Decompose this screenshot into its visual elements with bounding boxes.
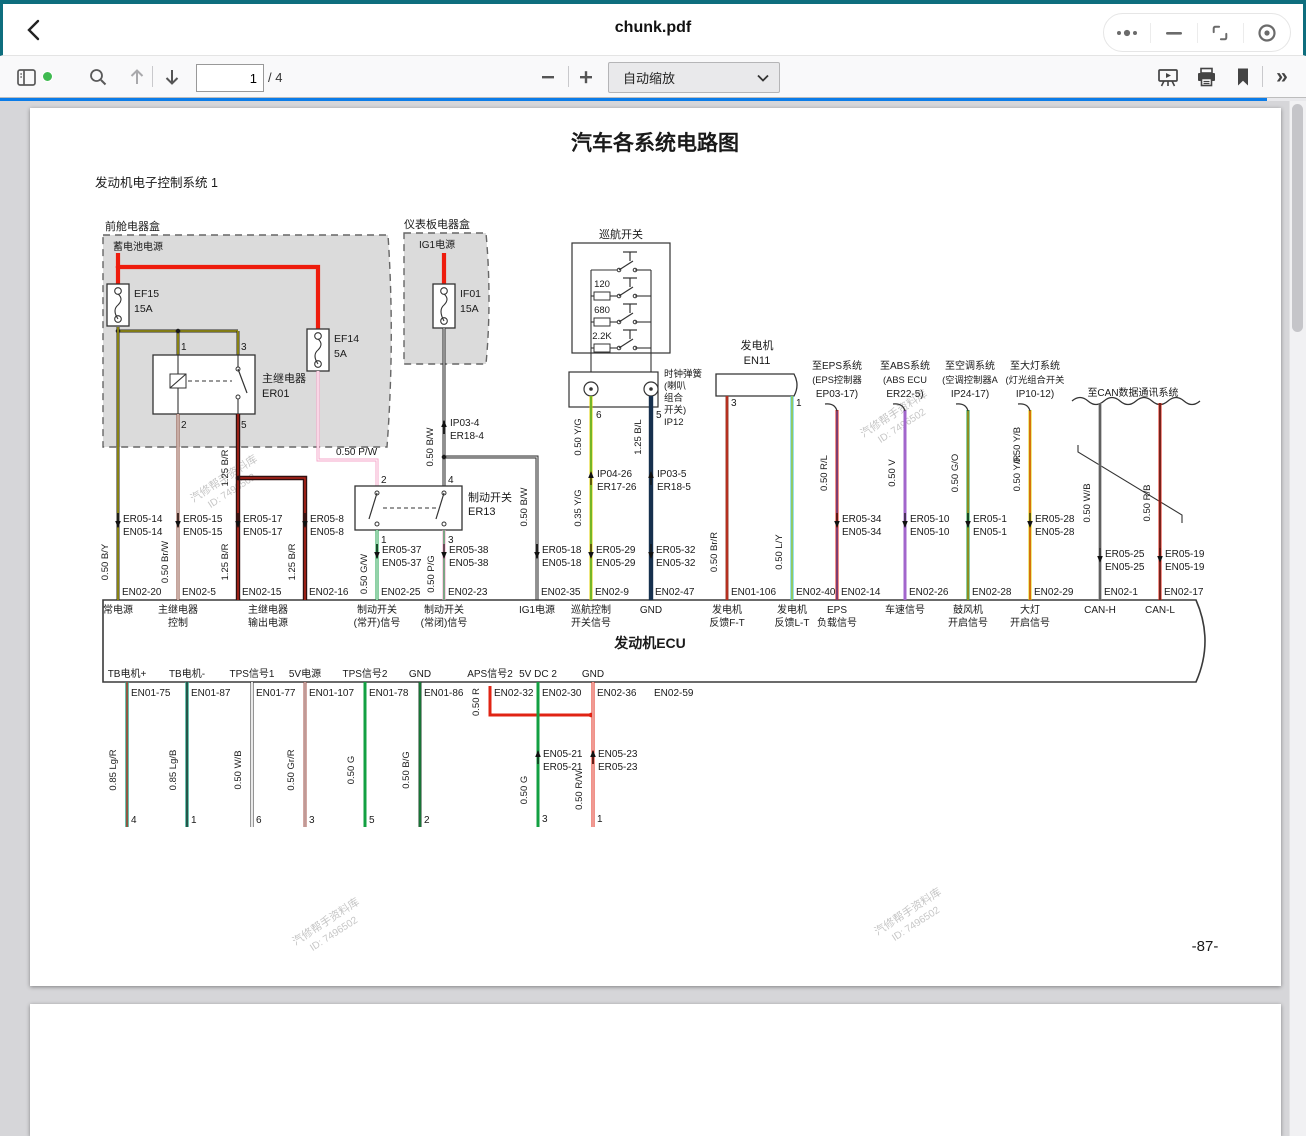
svg-text:输出电源: 输出电源	[248, 616, 288, 629]
svg-text:IF01: IF01	[460, 288, 481, 300]
svg-text:5V DC 2: 5V DC 2	[519, 669, 557, 680]
svg-text:0.50 B/G: 0.50 B/G	[401, 751, 412, 789]
svg-text:EN02-14: EN02-14	[841, 587, 881, 598]
svg-text:3: 3	[309, 815, 315, 826]
svg-text:0.50 Br/R: 0.50 Br/R	[709, 532, 720, 572]
brake-switch: 2413制动开关ER13	[355, 475, 512, 546]
svg-text:0.50 R: 0.50 R	[471, 688, 482, 716]
svg-text:TB电机-: TB电机-	[169, 667, 205, 680]
pdf-toolbar: / 4 自动缩放 »	[0, 56, 1306, 98]
svg-text:巡航开关: 巡航开关	[599, 227, 643, 241]
svg-text:至ABS系统: 至ABS系统	[880, 359, 930, 372]
svg-text:EN05-14: EN05-14	[123, 527, 163, 538]
window-titlebar: chunk.pdf	[0, 0, 1306, 56]
svg-text:EN02-5: EN02-5	[182, 587, 216, 598]
svg-text:0.50 G: 0.50 G	[519, 776, 530, 805]
more-tools-button[interactable]: »	[1268, 63, 1296, 91]
svg-text:15A: 15A	[134, 303, 153, 315]
svg-text:(常闭)信号: (常闭)信号	[421, 616, 468, 629]
svg-text:主继电器: 主继电器	[262, 372, 306, 385]
wire-EN01-77: EN01-77TPS信号10.50 W/B6	[229, 668, 295, 827]
svg-text:1.25 B/R: 1.25 B/R	[287, 543, 298, 580]
more-dots-icon	[1114, 28, 1140, 38]
svg-text:0.35 Y/G: 0.35 Y/G	[573, 489, 584, 526]
generator: 发电机EN1131	[716, 338, 802, 409]
svg-text:1.25 B/L: 1.25 B/L	[633, 419, 644, 454]
svg-text:GND: GND	[640, 605, 662, 616]
record-button[interactable]	[1244, 14, 1290, 51]
svg-text:ER05-34: ER05-34	[842, 514, 882, 525]
svg-text:EN02-40: EN02-40	[796, 587, 836, 598]
svg-text:ER05-1: ER05-1	[973, 514, 1007, 525]
svg-text:0.50 G/W: 0.50 G/W	[359, 554, 370, 594]
svg-text:开关信号: 开关信号	[571, 616, 611, 629]
svg-text:EN05-25: EN05-25	[1105, 562, 1145, 573]
svg-text:蓄电池电源: 蓄电池电源	[113, 240, 163, 253]
zoom-select[interactable]: 自动缩放	[608, 62, 780, 93]
svg-text:反馈L-T: 反馈L-T	[775, 616, 810, 629]
svg-text:开启信号: 开启信号	[1010, 616, 1050, 629]
svg-text:EF14: EF14	[334, 333, 359, 345]
notification-dot	[42, 71, 53, 82]
svg-text:0.50 W/B: 0.50 W/B	[233, 750, 244, 789]
wire-EN02-28: EN02-28鼓风机开启信号0.50 G/OER05-1EN05-1	[948, 404, 1012, 629]
svg-text:EN05-23: EN05-23	[598, 749, 638, 760]
svg-text:0.50 Br/W: 0.50 Br/W	[160, 541, 171, 583]
plus-icon	[578, 69, 594, 85]
svg-text:汽车各系统电路图: 汽车各系统电路图	[571, 131, 739, 155]
svg-text:TB电机+: TB电机+	[108, 667, 147, 680]
svg-text:0.50 R/W: 0.50 R/W	[574, 770, 585, 810]
svg-text:ER05-23: ER05-23	[598, 762, 638, 773]
watermark: 汽修帮手资料库ID: 7496502	[872, 884, 952, 949]
svg-text:EN01-107: EN01-107	[309, 688, 354, 699]
svg-text:ER05-29: ER05-29	[596, 545, 636, 556]
svg-text:EN02-30: EN02-30	[542, 688, 582, 699]
svg-text:CAN-H: CAN-H	[1084, 605, 1116, 616]
svg-text:3: 3	[241, 342, 247, 353]
svg-text:EPS: EPS	[827, 605, 847, 616]
svg-text:GND: GND	[409, 669, 431, 680]
branch-label-0: 至EPS系统(EPS控制器EP03-17)	[812, 359, 863, 400]
svg-text:(EPS控制器: (EPS控制器	[812, 374, 862, 385]
more-menu-button[interactable]	[1104, 14, 1150, 51]
svg-text:前舱电器盒: 前舱电器盒	[105, 219, 160, 233]
svg-text:EN01-78: EN01-78	[369, 688, 409, 699]
record-icon	[1257, 23, 1277, 43]
svg-text:EN02-9: EN02-9	[595, 587, 629, 598]
svg-text:EN02-36: EN02-36	[597, 688, 637, 699]
svg-text:ER05-28: ER05-28	[1035, 514, 1075, 525]
svg-text:开关): 开关)	[664, 404, 686, 416]
svg-text:2.2K: 2.2K	[592, 331, 612, 342]
svg-text:EN05-29: EN05-29	[596, 558, 636, 569]
svg-text:IP12: IP12	[664, 417, 684, 428]
previous-page-button[interactable]	[123, 63, 151, 91]
svg-text:制动开关: 制动开关	[424, 603, 464, 616]
wire-EN02-29: EN02-29大灯开启信号0.50 Y/R0.50 Y/BER05-28EN05…	[1010, 404, 1075, 629]
svg-text:至空调系统: 至空调系统	[945, 359, 995, 372]
svg-text:EN05-19: EN05-19	[1165, 562, 1205, 573]
svg-text:ER22-5): ER22-5)	[886, 389, 923, 400]
svg-text:ER05-38: ER05-38	[449, 545, 489, 556]
svg-text:EN01-87: EN01-87	[191, 688, 231, 699]
svg-text:EN05-18: EN05-18	[542, 558, 582, 569]
svg-text:2: 2	[381, 475, 387, 486]
wire-EN02-9: EN02-9巡航控制开关信号0.35 Y/G0.50 Y/GER05-29EN0…	[571, 396, 637, 629]
svg-text:1.25 B/R: 1.25 B/R	[220, 543, 231, 580]
svg-text:主继电器: 主继电器	[158, 603, 198, 616]
svg-text:5: 5	[656, 410, 662, 421]
svg-text:4: 4	[131, 815, 137, 826]
svg-text:ER05-14: ER05-14	[123, 514, 163, 525]
svg-text:EN02-32: EN02-32	[494, 688, 534, 699]
svg-text:2: 2	[181, 420, 187, 431]
svg-text:EN01-75: EN01-75	[131, 688, 171, 699]
svg-text:ER05-25: ER05-25	[1105, 549, 1145, 560]
svg-text:680: 680	[594, 305, 610, 316]
svg-text:至EPS系统: 至EPS系统	[812, 359, 862, 372]
wire-EN01-87: EN01-87TB电机-0.85 Lg/B1	[168, 667, 231, 827]
svg-text:IP03-5: IP03-5	[657, 469, 687, 480]
svg-text:0.50 P/W: 0.50 P/W	[336, 447, 378, 458]
presentation-mode-button[interactable]	[1154, 63, 1182, 91]
svg-text:鼓风机: 鼓风机	[953, 603, 983, 616]
svg-text:组合: 组合	[664, 392, 684, 404]
svg-text:仪表板电器盒: 仪表板电器盒	[404, 217, 470, 231]
svg-text:IG1电源: IG1电源	[419, 238, 455, 251]
svg-text:ER05-17: ER05-17	[243, 514, 283, 525]
minus-icon	[540, 69, 556, 85]
svg-text:TPS信号2: TPS信号2	[342, 668, 387, 680]
svg-text:EN05-17: EN05-17	[243, 527, 283, 538]
minimize-icon	[1165, 30, 1183, 36]
svg-text:至CAN数据通讯系统: 至CAN数据通讯系统	[1087, 386, 1178, 399]
svg-text:时钟弹簧: 时钟弹簧	[664, 368, 703, 380]
svg-text:0.50 R/B: 0.50 R/B	[1142, 485, 1153, 522]
wire-EN01-86: EN01-86GND0.50 B/G2	[401, 669, 464, 827]
wire-EN02-59: EN02-59	[654, 688, 694, 699]
bookmark-icon	[1235, 67, 1251, 87]
svg-text:EN05-37: EN05-37	[382, 558, 422, 569]
svg-text:6: 6	[596, 410, 602, 421]
svg-text:0.85 Lg/R: 0.85 Lg/R	[108, 749, 119, 790]
svg-text:0.50 W/B: 0.50 W/B	[1082, 483, 1093, 522]
pdf-page-2	[30, 1004, 1281, 1136]
scrollbar-thumb[interactable]	[1292, 104, 1303, 332]
zoom-out-button[interactable]	[534, 63, 562, 91]
cruise-switch: 巡航开关1206802.2K	[572, 227, 670, 372]
svg-text:5A: 5A	[334, 348, 347, 360]
svg-text:15A: 15A	[460, 303, 479, 315]
wire-EN02-40: EN02-40发电机反馈L-T0.50 L/Y	[774, 396, 836, 629]
svg-text:主继电器: 主继电器	[248, 603, 288, 616]
svg-text:制动开关: 制动开关	[357, 603, 397, 616]
svg-text:120: 120	[594, 279, 610, 290]
branch-label-3: 至大灯系统(灯光组合开关IP10-12)	[1006, 359, 1065, 400]
svg-text:EN02-1: EN02-1	[1104, 587, 1138, 598]
svg-text:发电机: 发电机	[741, 338, 774, 352]
svg-text:0.50 L/Y: 0.50 L/Y	[774, 534, 785, 570]
svg-text:1: 1	[191, 815, 197, 826]
wire-EN01-75: EN01-75TB电机+0.85 Lg/R4	[108, 667, 171, 827]
svg-text:EN05-32: EN05-32	[656, 558, 696, 569]
window-controls	[1103, 13, 1291, 52]
arrow-down-icon	[163, 67, 181, 87]
svg-text:EN02-28: EN02-28	[972, 587, 1012, 598]
branch-label-1: 至ABS系统(ABS ECUER22-5)	[880, 359, 930, 400]
clock-spring: 65时钟弹簧(喇叭组合开关)IP12	[569, 368, 703, 428]
svg-text:ER05-37: ER05-37	[382, 545, 422, 556]
svg-text:IP03-4: IP03-4	[450, 418, 480, 429]
svg-text:0.50 V: 0.50 V	[887, 459, 898, 487]
svg-text:EF15: EF15	[134, 288, 159, 300]
svg-text:ER13: ER13	[468, 506, 496, 518]
svg-text:6: 6	[256, 815, 262, 826]
svg-text:EN05-8: EN05-8	[310, 527, 344, 538]
svg-text:0.50 B/W: 0.50 B/W	[519, 487, 530, 526]
svg-text:大灯: 大灯	[1020, 603, 1040, 616]
svg-text:EN02-26: EN02-26	[909, 587, 949, 598]
svg-text:(ABS ECU: (ABS ECU	[883, 375, 927, 385]
svg-text:负载信号: 负载信号	[817, 616, 857, 629]
svg-text:EN05-1: EN05-1	[973, 527, 1007, 538]
svg-text:EN01-77: EN01-77	[256, 688, 296, 699]
svg-text:IP24-17): IP24-17)	[951, 389, 989, 400]
svg-text:ER05-32: ER05-32	[656, 545, 696, 556]
svg-text:EN02-15: EN02-15	[242, 587, 282, 598]
svg-text:EN02-16: EN02-16	[309, 587, 349, 598]
chevron-down-icon	[757, 74, 769, 82]
bookmark-button[interactable]	[1229, 63, 1257, 91]
svg-text:TPS信号1: TPS信号1	[229, 668, 274, 680]
svg-text:EN02-17: EN02-17	[1164, 587, 1204, 598]
svg-text:3: 3	[542, 814, 548, 825]
print-icon	[1196, 67, 1217, 88]
scrollbar[interactable]	[1289, 101, 1306, 1136]
svg-text:-87-: -87-	[1192, 938, 1219, 955]
svg-text:ER05-10: ER05-10	[910, 514, 950, 525]
svg-text:1: 1	[796, 398, 802, 409]
page-number-input[interactable]	[196, 64, 264, 92]
sidebar-icon	[16, 67, 37, 88]
svg-text:EN05-38: EN05-38	[449, 558, 489, 569]
print-button[interactable]	[1192, 63, 1220, 91]
svg-text:1: 1	[181, 342, 187, 353]
wire-EN01-107: EN01-1075V电源0.50 Gr/R3	[286, 667, 354, 827]
svg-text:EN05-21: EN05-21	[543, 749, 583, 760]
svg-text:EP03-17): EP03-17)	[816, 389, 858, 400]
svg-text:(喇叭: (喇叭	[664, 380, 687, 392]
svg-text:0.50 G/O: 0.50 G/O	[950, 454, 961, 493]
svg-text:ER18-5: ER18-5	[657, 482, 691, 493]
arrow-up-icon	[128, 67, 146, 87]
svg-text:EN11: EN11	[744, 355, 771, 367]
fullscreen-button[interactable]	[1198, 14, 1244, 51]
svg-text:发动机电子控制系统 1: 发动机电子控制系统 1	[95, 175, 218, 190]
svg-text:4: 4	[448, 475, 454, 486]
svg-text:EN02-59: EN02-59	[654, 688, 694, 699]
watermark: 汽修帮手资料库ID: 7496502	[290, 894, 370, 959]
zoom-select-label: 自动缩放	[609, 68, 757, 87]
search-icon	[88, 67, 108, 87]
wire-EN02-36: EN02-36GND0.50 R/W1EN05-23ER05-23	[574, 669, 638, 827]
svg-text:1: 1	[597, 814, 603, 825]
svg-text:EN02-47: EN02-47	[655, 587, 695, 598]
svg-text:EN02-23: EN02-23	[448, 587, 488, 598]
svg-text:IP10-12): IP10-12)	[1016, 389, 1054, 400]
svg-text:发动机ECU: 发动机ECU	[613, 635, 686, 651]
svg-text:3: 3	[731, 398, 737, 409]
svg-text:IG1电源: IG1电源	[519, 603, 555, 616]
svg-text:EN05-15: EN05-15	[183, 527, 223, 538]
svg-text:EN05-28: EN05-28	[1035, 527, 1075, 538]
svg-text:CAN-L: CAN-L	[1145, 605, 1175, 616]
svg-text:0.50 Y/B: 0.50 Y/B	[1012, 427, 1023, 463]
svg-text:ER05-19: ER05-19	[1165, 549, 1205, 560]
svg-text:ER01: ER01	[262, 388, 290, 400]
branch-label-2: 至空调系统(空调控制器AIP24-17)	[942, 359, 999, 400]
svg-text:EN05-10: EN05-10	[910, 527, 950, 538]
svg-text:0.85 Lg/B: 0.85 Lg/B	[168, 750, 179, 791]
wire-EN02-1: EN02-1CAN-H0.50 W/BER05-25EN05-25	[1082, 403, 1145, 616]
svg-text:0.50 Y/G: 0.50 Y/G	[573, 418, 584, 455]
svg-text:IP04-26: IP04-26	[597, 469, 632, 480]
svg-text:ER05-8: ER05-8	[310, 514, 344, 525]
svg-text:(空调控制器A: (空调控制器A	[942, 374, 999, 385]
svg-text:(灯光组合开关: (灯光组合开关	[1006, 374, 1065, 385]
svg-text:EN02-29: EN02-29	[1034, 587, 1074, 598]
svg-text:EN01-86: EN01-86	[424, 688, 464, 699]
svg-text:GND: GND	[582, 669, 604, 680]
svg-text:5: 5	[369, 815, 375, 826]
svg-text:ER05-18: ER05-18	[542, 545, 582, 556]
svg-text:5V电源: 5V电源	[289, 667, 321, 680]
svg-text:0.50 G: 0.50 G	[346, 756, 357, 785]
svg-text:制动开关: 制动开关	[468, 490, 512, 504]
svg-text:常电源: 常电源	[103, 603, 133, 616]
page-total-label: / 4	[268, 70, 282, 85]
svg-text:发电机: 发电机	[712, 603, 742, 616]
next-page-button[interactable]	[158, 63, 186, 91]
svg-text:ER05-15: ER05-15	[183, 514, 223, 525]
svg-text:0.50 R/L: 0.50 R/L	[819, 455, 830, 491]
svg-text:0.50 Gr/R: 0.50 Gr/R	[286, 749, 297, 790]
wire-EN01-106: EN01-106发电机反馈F-T0.50 Br/R	[709, 396, 776, 629]
fullscreen-icon	[1211, 24, 1229, 42]
svg-text:2: 2	[424, 815, 430, 826]
svg-text:控制: 控制	[168, 616, 188, 629]
svg-text:开启信号: 开启信号	[948, 616, 988, 629]
svg-text:ER17-26: ER17-26	[597, 482, 637, 493]
svg-text:EN02-35: EN02-35	[541, 587, 581, 598]
svg-text:巡航控制: 巡航控制	[571, 603, 611, 616]
zoom-in-button[interactable]	[572, 63, 600, 91]
sidebar-toggle-button[interactable]	[12, 63, 40, 91]
svg-text:EN01-106: EN01-106	[731, 587, 776, 598]
svg-text:0.50 B/W: 0.50 B/W	[425, 427, 436, 466]
wire-EN02-47: EN02-47GND1.25 B/LER05-32EN05-32IP03-5ER…	[633, 396, 696, 616]
pdf-page-1: 汽修帮手资料库ID: 7496502汽修帮手资料库ID: 7496502汽修帮手…	[30, 108, 1281, 986]
svg-text:1.25 B/R: 1.25 B/R	[220, 449, 231, 486]
svg-text:5: 5	[241, 420, 247, 431]
svg-text:(常开)信号: (常开)信号	[354, 616, 401, 629]
svg-text:EN05-34: EN05-34	[842, 527, 882, 538]
svg-text:车速信号: 车速信号	[885, 603, 925, 616]
presentation-icon	[1157, 67, 1179, 88]
svg-text:ER18-4: ER18-4	[450, 431, 484, 442]
svg-text:发电机: 发电机	[777, 603, 807, 616]
svg-text:反馈F-T: 反馈F-T	[709, 616, 745, 629]
search-button[interactable]	[84, 63, 112, 91]
svg-text:0.50 B/Y: 0.50 B/Y	[100, 543, 111, 580]
svg-text:EN02-25: EN02-25	[381, 587, 421, 598]
svg-text:至大灯系统: 至大灯系统	[1010, 359, 1060, 372]
chevron-double-right-icon: »	[1276, 65, 1288, 89]
svg-text:APS信号2: APS信号2	[467, 668, 513, 680]
minimize-button[interactable]	[1151, 14, 1197, 51]
svg-text:0.50 P/G: 0.50 P/G	[426, 555, 437, 593]
app-window: chunk.pdf / 4 自动缩放	[0, 0, 1306, 1136]
svg-text:EN02-20: EN02-20	[122, 587, 162, 598]
